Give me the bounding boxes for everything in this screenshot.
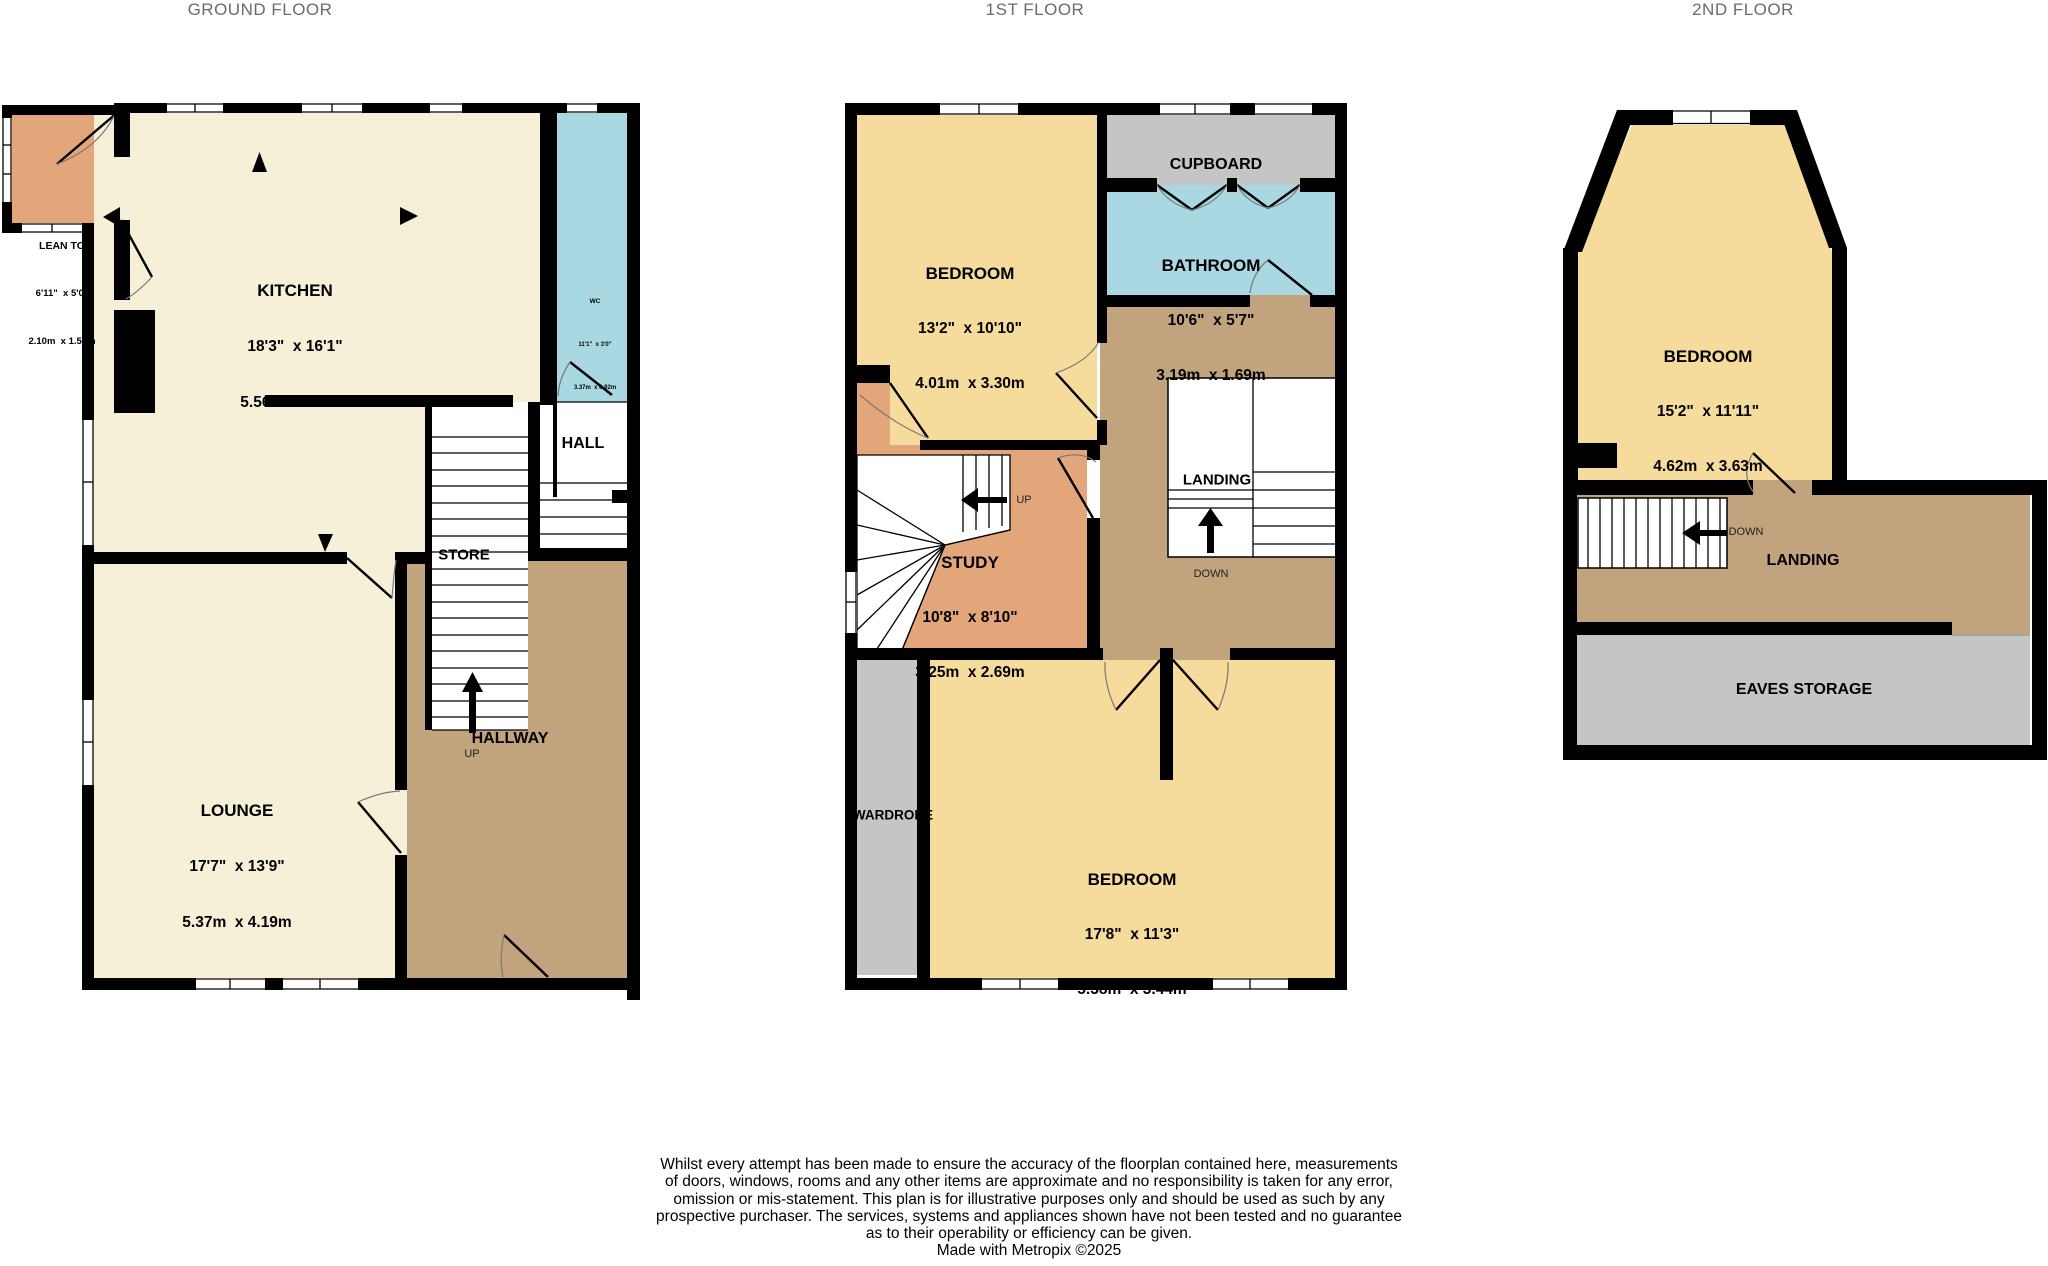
disclaimer-line: Whilst every attempt has been made to en…: [499, 1156, 1559, 1173]
ground-floor-title: GROUND FLOOR: [188, 0, 333, 20]
room-dim-imperial: 10'8" x 8'10": [915, 608, 1024, 627]
room-dim-imperial: 6'11" x 5'0": [28, 288, 95, 300]
room-name: BEDROOM: [915, 264, 1024, 283]
floorplan-page: GROUND FLOOR 1ST FLOOR 2ND FLOOR: [0, 0, 2048, 1266]
disclaimer-line: as to their operability or efficiency ca…: [499, 1225, 1559, 1242]
room-dim-imperial: 11'1" x 3'0": [574, 342, 616, 350]
room-dim-metric: 3.37m x 0.92m: [574, 385, 616, 393]
room-dim-metric: 2.10m x 1.52m: [28, 336, 95, 348]
room-dim-imperial: 18'3" x 16'1": [240, 337, 349, 357]
cupboard-label: CUPBOARD: [1170, 156, 1262, 174]
room-name: KITCHEN: [240, 281, 349, 301]
room-name: BEDROOM: [1077, 870, 1186, 889]
room-dim-metric: 5.37m x 4.19m: [182, 913, 291, 933]
hall-label: HALL: [562, 435, 605, 453]
room-dim-metric: 4.62m x 3.63m: [1653, 457, 1762, 476]
up-text: UP: [1016, 494, 1031, 506]
room-dim-imperial: 15'2" x 11'11": [1653, 402, 1762, 421]
ground-floor-drawing: [0, 100, 645, 1010]
second-windows: [1673, 110, 1750, 125]
disclaimer-credit: Made with Metropix ©2025: [499, 1242, 1559, 1259]
bedroom2-label: BEDROOM 17'8" x 11'3" 5.38m x 3.44m: [1077, 834, 1186, 1035]
room-name: BEDROOM: [1653, 347, 1762, 366]
room-name: STUDY: [915, 553, 1024, 572]
disclaimer-text: Whilst every attempt has been made to en…: [499, 1156, 1559, 1260]
wc-label: WC 11'1" x 3'0" 3.37m x 0.92m: [574, 262, 616, 429]
room-dim-metric: 3.25m x 2.69m: [915, 663, 1024, 682]
room-dim-metric: 4.01m x 3.30m: [915, 374, 1024, 393]
bathroom-label: BATHROOM 10'6" x 5'7" 3.19m x 1.69m: [1156, 220, 1265, 421]
bedroom1-label: BEDROOM 13'2" x 10'10" 4.01m x 3.30m: [915, 228, 1024, 429]
second-floor-drawing: [1555, 100, 2048, 775]
disclaimer-line: of doors, windows, rooms and any other i…: [499, 1173, 1559, 1190]
study-label: STUDY 10'8" x 8'10" 3.25m x 2.69m: [915, 517, 1024, 718]
room-dim-imperial: 17'8" x 11'3": [1077, 925, 1186, 944]
down-text: DOWN: [1729, 526, 1764, 538]
room-name: LEAN TO: [28, 240, 95, 252]
eaves-storage-label: EAVES STORAGE: [1736, 681, 1872, 699]
room-dim-imperial: 13'2" x 10'10": [915, 319, 1024, 338]
second-floor-plan: BEDROOM 15'2" x 11'11" 4.62m x 3.63m DOW…: [1555, 100, 2048, 775]
room-dim-metric: 5.38m x 3.44m: [1077, 980, 1186, 999]
room-name: BATHROOM: [1156, 256, 1265, 275]
disclaimer-line: prospective purchaser. The services, sys…: [499, 1208, 1559, 1225]
room-dim-imperial: 17'7" x 13'9": [182, 857, 291, 877]
landing-label: LANDING: [1183, 472, 1251, 489]
room-dim-imperial: 10'6" x 5'7": [1156, 311, 1265, 330]
first-floor-title: 1ST FLOOR: [986, 0, 1085, 20]
second-floor-title: 2ND FLOOR: [1692, 0, 1794, 20]
room-name: WC: [574, 298, 616, 306]
lean-to-label: LEAN TO 6'11" x 5'0" 2.10m x 1.52m: [28, 204, 95, 384]
landing-label: LANDING: [1767, 552, 1840, 570]
room-dim-metric: 5.56m x 4.91m: [240, 393, 349, 413]
kitchen-label: KITCHEN 18'3" x 16'1" 5.56m x 4.91m: [240, 245, 349, 449]
disclaimer-line: omission or mis-statement. This plan is …: [499, 1191, 1559, 1208]
bedroom-label: BEDROOM 15'2" x 11'11" 4.62m x 3.63m: [1653, 311, 1762, 512]
lounge-label: LOUNGE 17'7" x 13'9" 5.37m x 4.19m: [182, 765, 291, 969]
second-room-fills: [1577, 125, 2030, 745]
down-text: DOWN: [1194, 568, 1229, 580]
room-name: LOUNGE: [182, 801, 291, 821]
room-dim-metric: 3.19m x 1.69m: [1156, 366, 1265, 385]
up-text: UP: [464, 748, 479, 760]
store-label: STORE: [438, 547, 489, 564]
wardrobe-label: WARDROBE: [853, 808, 933, 823]
first-floor-plan: BEDROOM 13'2" x 10'10" 4.01m x 3.30m CUP…: [840, 100, 1355, 995]
cupboard-room: [1107, 115, 1335, 185]
hallway-label: HALLWAY: [472, 730, 549, 748]
ground-floor-plan: LEAN TO 6'11" x 5'0" 2.10m x 1.52m KITCH…: [0, 100, 645, 1010]
